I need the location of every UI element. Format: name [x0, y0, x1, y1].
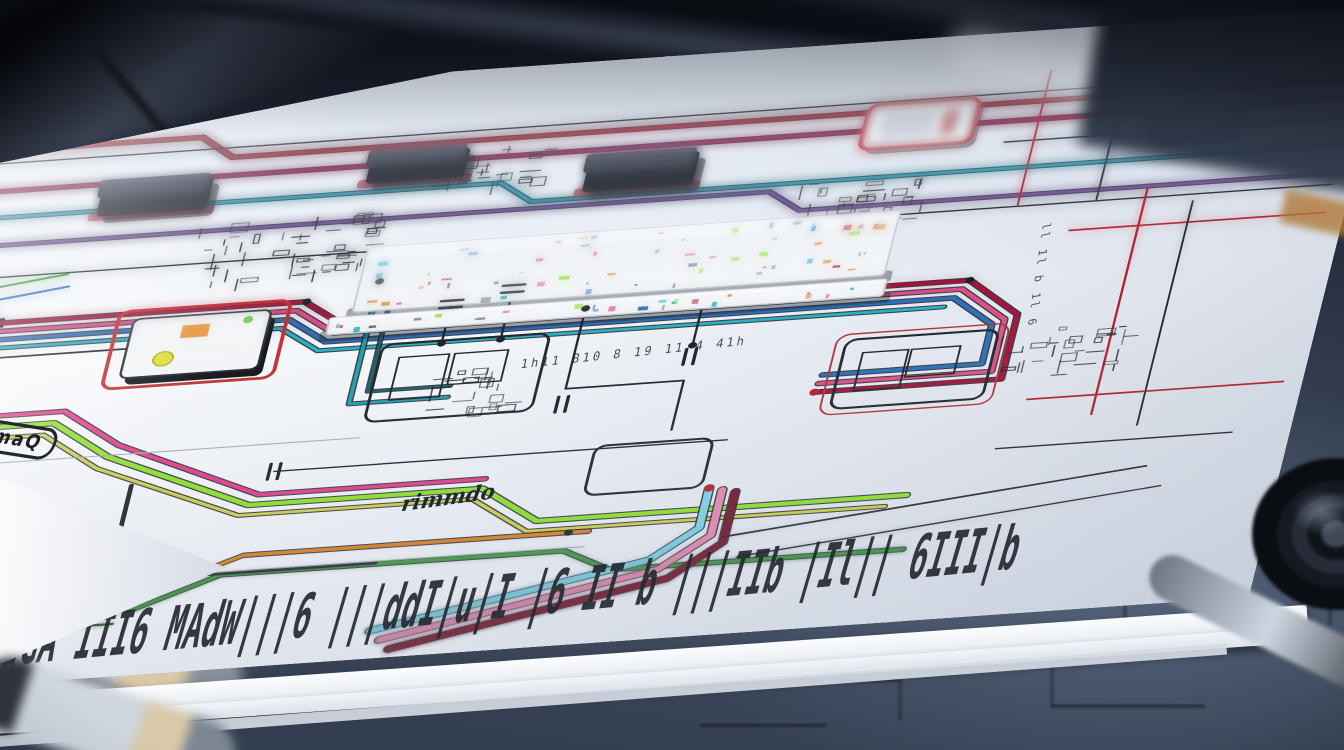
- hatch-mark: [204, 250, 211, 251]
- hatch-mark: [473, 392, 475, 399]
- hatch-mark: [235, 279, 238, 290]
- hatch-mark: [857, 196, 876, 202]
- hatch-mark: [282, 233, 284, 240]
- capacitor-symbol: [565, 396, 569, 411]
- hatch-mark: [545, 149, 557, 150]
- strip-speck: [378, 261, 389, 266]
- strip-speck: [396, 302, 402, 305]
- hatch-mark: [312, 270, 315, 282]
- hatch-mark: [864, 190, 885, 191]
- hatch-mark: [273, 250, 290, 256]
- capacitor-symbol: [267, 464, 271, 479]
- component-box: [584, 438, 714, 496]
- strip-speck: [480, 297, 491, 303]
- hatch-mark: [253, 234, 260, 243]
- strip-speck: [536, 258, 544, 262]
- wire: [274, 440, 727, 472]
- hatch-mark: [452, 400, 471, 401]
- hatch-mark: [466, 406, 474, 413]
- hatch-mark: [884, 194, 886, 200]
- strip-speck: [494, 281, 499, 284]
- hatch-mark: [810, 184, 819, 185]
- strip-speck: [731, 228, 739, 233]
- strip-speck: [688, 263, 698, 267]
- component-inner: [389, 354, 450, 400]
- hatch-mark: [230, 237, 239, 238]
- desk-scene: Casou ammaQ rimmdo 1h11 810 8 19 11 4 41…: [0, 0, 1344, 750]
- hatch-mark: [866, 181, 883, 186]
- hatch-mark: [322, 256, 330, 257]
- hatch-mark: [821, 189, 822, 193]
- card-orange-speck: [180, 324, 211, 339]
- hatch-mark: [366, 244, 383, 245]
- strip-speck: [850, 288, 854, 291]
- hatch-mark: [326, 230, 340, 231]
- hatch-mark: [477, 172, 489, 173]
- hatch-mark: [839, 197, 851, 202]
- capacitor-symbol: [440, 307, 462, 309]
- strip-speck: [681, 239, 685, 241]
- hatch-mark: [356, 263, 358, 270]
- component-inner: [447, 350, 508, 385]
- strip-speck: [638, 306, 649, 311]
- strip-speck: [814, 242, 822, 245]
- hatch-mark: [1032, 361, 1042, 362]
- hatch-mark: [481, 170, 482, 176]
- hatch-mark: [521, 177, 531, 178]
- strip-speck: [418, 286, 424, 289]
- hatch-mark: [213, 266, 216, 276]
- desk-trace-groove: [840, 680, 900, 720]
- hatch-mark: [240, 243, 242, 252]
- capacitor-symbol: [441, 300, 463, 302]
- hatch-mark: [335, 264, 349, 271]
- strip-speck: [807, 292, 810, 294]
- hatch-mark: [903, 218, 916, 219]
- hatch-mark: [1022, 347, 1023, 353]
- strip-speck: [763, 266, 767, 268]
- hatch-mark: [225, 270, 228, 282]
- desk-trace-highlight: [840, 677, 900, 717]
- hatch-mark: [293, 275, 306, 276]
- hatch-mark: [302, 267, 309, 268]
- card-inner: [879, 109, 937, 139]
- hatch-mark: [1059, 327, 1067, 330]
- hatch-mark: [818, 188, 828, 197]
- hatch-mark: [343, 262, 355, 263]
- hatch-mark: [1050, 343, 1058, 344]
- hatch-mark: [892, 188, 908, 195]
- hatch-mark: [1074, 363, 1095, 364]
- strip-speck: [875, 224, 886, 230]
- hatch-mark: [1113, 364, 1115, 370]
- hatch-mark: [210, 282, 212, 288]
- hatch-mark: [868, 194, 875, 195]
- capacitor-symbol: [503, 284, 525, 286]
- hatch-mark: [225, 246, 227, 254]
- hatch-mark: [297, 243, 308, 244]
- hatch-mark: [240, 277, 258, 282]
- capacitor-symbol: [555, 397, 559, 412]
- hatch-mark: [205, 268, 218, 269]
- hatch-mark: [1057, 361, 1060, 374]
- hatch-mark: [799, 186, 802, 200]
- capacitor-symbol: [277, 463, 281, 478]
- wire: [1091, 189, 1147, 414]
- strip-speck: [591, 235, 597, 238]
- strip-speck: [759, 252, 768, 257]
- hatch-mark: [300, 235, 301, 240]
- wire: [1027, 382, 1283, 400]
- hatch-mark: [503, 149, 511, 150]
- hatch-mark: [1051, 374, 1066, 375]
- strip-speck: [608, 306, 616, 311]
- hatch-mark: [1060, 353, 1077, 362]
- strip-speck: [691, 299, 699, 304]
- hatch-mark: [1017, 363, 1019, 372]
- strip-speck: [731, 257, 740, 262]
- strip-speck: [435, 314, 443, 318]
- hatch-mark: [1075, 350, 1084, 351]
- strip-speck: [375, 273, 382, 278]
- hatch-mark: [242, 253, 245, 266]
- strip-speck: [634, 284, 637, 286]
- hatch-mark: [1052, 346, 1055, 357]
- hatch-mark: [1021, 361, 1024, 373]
- hatch-mark: [292, 254, 295, 265]
- hatch-mark: [1087, 351, 1104, 352]
- hatch-mark: [334, 245, 345, 250]
- hatch-mark: [344, 223, 354, 224]
- capacitor-symbol: [502, 291, 524, 293]
- strip-speck: [823, 260, 832, 264]
- strip-speck: [593, 309, 599, 312]
- capacitor-symbol: [0, 326, 2, 328]
- hatch-mark: [1104, 361, 1118, 365]
- strip-speck: [671, 301, 675, 304]
- hatch-mark: [458, 371, 466, 375]
- hatch-mark: [497, 384, 499, 390]
- hatch-mark: [360, 259, 362, 266]
- hatch-mark: [489, 394, 504, 402]
- hatch-mark: [472, 368, 488, 375]
- hatch-mark: [520, 170, 540, 171]
- hatch-mark: [1030, 342, 1047, 348]
- hatch-mark: [426, 409, 444, 410]
- hatch-mark: [506, 402, 522, 403]
- hatch-mark: [478, 177, 489, 178]
- hatch-mark: [224, 240, 225, 245]
- hatch-mark: [348, 251, 356, 252]
- hatch-mark: [1107, 334, 1116, 335]
- hatch-mark: [303, 260, 313, 261]
- hatch-mark: [1116, 350, 1119, 361]
- hatch-mark: [497, 404, 516, 412]
- junction-dot-red: [809, 388, 821, 396]
- hatch-mark: [321, 264, 335, 270]
- hatch-mark: [1094, 337, 1102, 342]
- hatch-mark: [906, 197, 913, 198]
- hatch-mark: [289, 266, 292, 279]
- strip-speck: [843, 225, 852, 230]
- strip-speck: [863, 252, 866, 254]
- strip-speck: [537, 281, 546, 286]
- strip-speck: [756, 272, 762, 275]
- strip-speck: [727, 294, 732, 297]
- strip-speck: [500, 296, 507, 300]
- strip-speck: [555, 241, 561, 244]
- hatch-mark: [486, 163, 488, 171]
- hatch-mark: [327, 251, 346, 252]
- hatch-mark: [1124, 335, 1138, 336]
- wire: [996, 432, 1232, 449]
- strip-speck: [381, 301, 390, 305]
